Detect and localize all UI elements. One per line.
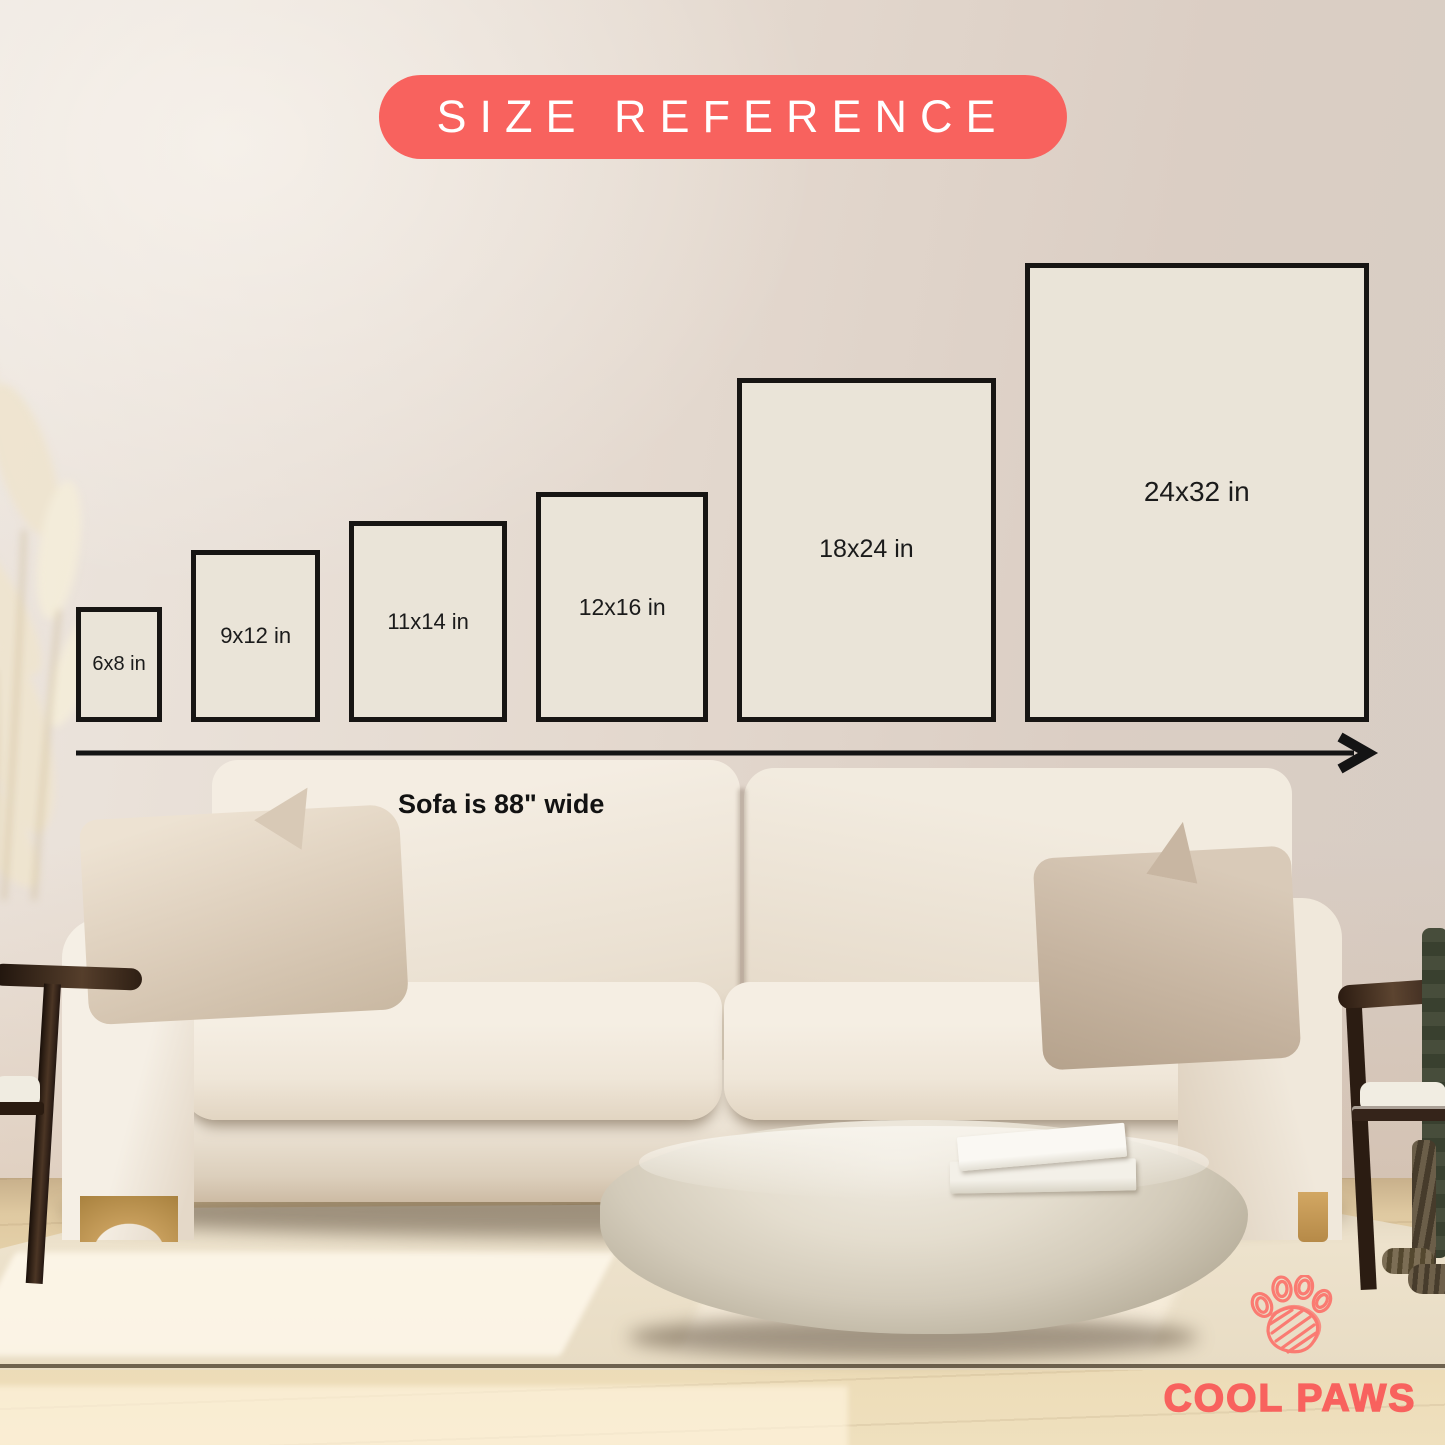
throw-pillow-left [79, 804, 409, 1025]
sunlight-patch [0, 1386, 848, 1445]
brand-logo: COOL PAWS [1140, 1275, 1440, 1435]
size-box-label: 12x16 in [579, 594, 666, 621]
size-boxes: 6x8 in9x12 in11x14 in12x16 in18x24 in24x… [76, 0, 1369, 722]
sofa-leg-gold-left [80, 1196, 178, 1242]
size-box-6x8: 6x8 in [76, 607, 162, 722]
size-box-label: 18x24 in [819, 535, 914, 564]
width-arrow [60, 728, 1390, 780]
right-chair-seat-frame [1352, 1106, 1445, 1121]
sofa-width-note: Sofa is 88" wide [398, 789, 604, 820]
size-box-label: 6x8 in [92, 653, 145, 676]
size-box-18x24: 18x24 in [737, 378, 995, 722]
size-box-12x16: 12x16 in [536, 492, 708, 722]
brand-name: COOL PAWS [1140, 1377, 1440, 1421]
paw-print-icon [1242, 1275, 1338, 1367]
left-chair-seat-frame [0, 1102, 44, 1115]
size-box-label: 24x32 in [1144, 476, 1250, 508]
sunlight-patch [0, 1252, 616, 1356]
size-box-11x14: 11x14 in [349, 521, 507, 722]
sofa-leg-gold-right [1298, 1192, 1328, 1242]
size-reference-poster: SIZE REFERENCE 6x8 in9x12 in11x14 in12x1… [0, 0, 1445, 1445]
size-box-9x12: 9x12 in [191, 550, 320, 722]
size-box-label: 11x14 in [387, 609, 469, 635]
throw-pillow-right [1033, 845, 1302, 1070]
size-box-24x32: 24x32 in [1025, 263, 1369, 722]
size-box-label: 9x12 in [220, 623, 291, 649]
